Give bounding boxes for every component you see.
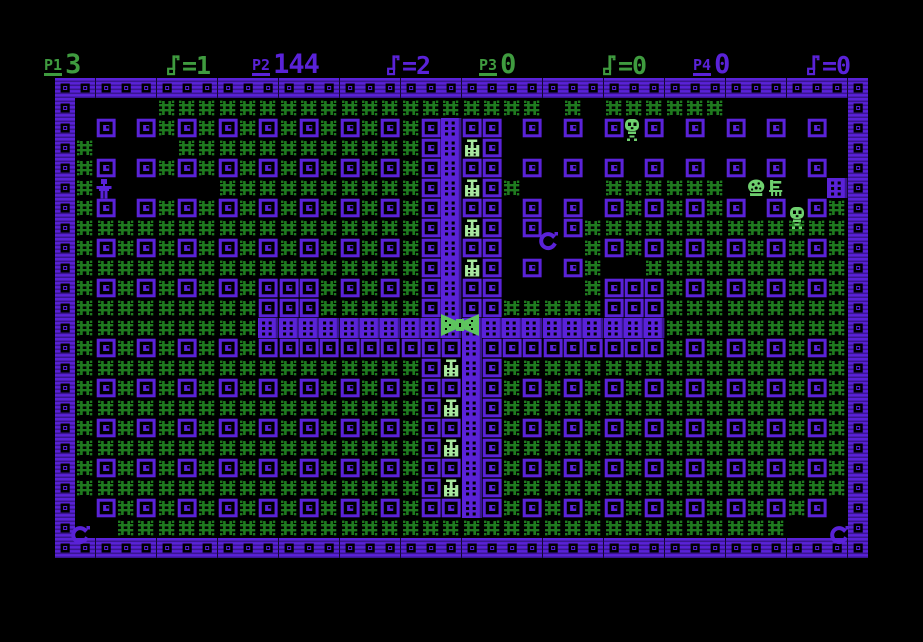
tile-wall-block bbox=[482, 198, 502, 218]
tile-wall-block bbox=[258, 238, 278, 258]
tile-grass bbox=[279, 158, 299, 178]
tile-grass bbox=[177, 358, 197, 378]
tile-grass bbox=[136, 298, 156, 318]
tile-edge-wall bbox=[766, 78, 786, 98]
tile-grass bbox=[157, 318, 177, 338]
tile-grass bbox=[340, 398, 360, 418]
tile-grass bbox=[360, 398, 380, 418]
tile-grass bbox=[827, 318, 847, 338]
tile-grass bbox=[360, 158, 380, 178]
tile-wall-block bbox=[766, 338, 786, 358]
tile-wall-block bbox=[340, 338, 360, 358]
tile-edge-wall bbox=[55, 318, 75, 338]
tile-grass bbox=[746, 518, 766, 538]
tile-dotted-door bbox=[462, 418, 482, 438]
sprite-player-purple bbox=[94, 179, 114, 203]
tile-grass bbox=[380, 298, 400, 318]
tile-grass bbox=[543, 298, 563, 318]
tile-grass bbox=[340, 518, 360, 538]
tile-edge-wall bbox=[848, 138, 868, 158]
tile-wall-block bbox=[604, 418, 624, 438]
tile-wall-block bbox=[685, 378, 705, 398]
tile-wall-block bbox=[136, 498, 156, 518]
tile-grass bbox=[746, 338, 766, 358]
tile-wall-block bbox=[685, 198, 705, 218]
tile-grass bbox=[766, 398, 786, 418]
tile-edge-wall bbox=[726, 538, 746, 558]
tile-wall-block bbox=[421, 218, 441, 238]
tile-wall-block bbox=[96, 378, 116, 398]
tile-wall-block bbox=[421, 158, 441, 178]
tile-grass bbox=[787, 278, 807, 298]
tile-wall-block bbox=[218, 238, 238, 258]
tile-wall-block bbox=[421, 178, 441, 198]
tile-wall-block bbox=[421, 338, 441, 358]
tile-empty bbox=[563, 138, 583, 158]
tile-grass bbox=[136, 438, 156, 458]
tile-grass bbox=[340, 258, 360, 278]
tile-edge-wall bbox=[848, 158, 868, 178]
tile-edge-wall bbox=[75, 78, 95, 98]
tile-grass bbox=[238, 178, 258, 198]
hud-p4-keys: =0 bbox=[806, 48, 850, 76]
p1-keys-value: =1 bbox=[182, 55, 210, 76]
tile-grass bbox=[218, 318, 238, 338]
tile-grass bbox=[157, 198, 177, 218]
tile-edge-wall bbox=[258, 78, 278, 98]
tile-heap-item bbox=[746, 178, 766, 198]
p4-keys-value: =0 bbox=[822, 55, 850, 76]
tile-wall-block bbox=[380, 118, 400, 138]
tile-grass bbox=[502, 358, 522, 378]
tile-wall-block bbox=[177, 378, 197, 398]
tile-grass bbox=[380, 218, 400, 238]
tile-edge-wall bbox=[55, 438, 75, 458]
tile-grass bbox=[502, 498, 522, 518]
tile-grass bbox=[197, 218, 217, 238]
tile-grass bbox=[766, 258, 786, 278]
tile-grass bbox=[258, 98, 278, 118]
tile-edge-wall bbox=[197, 78, 217, 98]
tile-dotted-door bbox=[441, 278, 461, 298]
tile-grass bbox=[319, 438, 339, 458]
tile-grass bbox=[746, 258, 766, 278]
tile-grass bbox=[502, 98, 522, 118]
tile-empty bbox=[502, 218, 522, 238]
tile-wall-block bbox=[807, 238, 827, 258]
tile-grass bbox=[604, 178, 624, 198]
tile-grass bbox=[116, 238, 136, 258]
tile-grass bbox=[746, 458, 766, 478]
tile-wall-block bbox=[604, 458, 624, 478]
tile-grass bbox=[197, 118, 217, 138]
tile-grass bbox=[279, 98, 299, 118]
tile-grass bbox=[136, 318, 156, 338]
tile-wall-block bbox=[421, 458, 441, 478]
tile-grass bbox=[360, 438, 380, 458]
tile-empty bbox=[96, 138, 116, 158]
tile-grass bbox=[401, 418, 421, 438]
tile-grass bbox=[136, 518, 156, 538]
tile-wall-block bbox=[726, 238, 746, 258]
tile-grass bbox=[401, 478, 421, 498]
tile-empty bbox=[96, 98, 116, 118]
tile-grass bbox=[380, 98, 400, 118]
tile-edge-wall bbox=[848, 418, 868, 438]
tile-grass bbox=[380, 138, 400, 158]
tile-grass bbox=[197, 278, 217, 298]
key-icon bbox=[386, 54, 401, 76]
tile-edge-wall bbox=[340, 78, 360, 98]
tile-grass bbox=[502, 378, 522, 398]
tile-grass bbox=[238, 498, 258, 518]
tile-grass bbox=[705, 218, 725, 238]
tile-grass bbox=[401, 198, 421, 218]
tile-wall-block bbox=[482, 278, 502, 298]
tile-grass bbox=[705, 338, 725, 358]
tile-edge-wall bbox=[55, 198, 75, 218]
tile-grass bbox=[299, 478, 319, 498]
tile-edge-wall bbox=[827, 78, 847, 98]
tile-grass bbox=[726, 298, 746, 318]
tile-dotted-door bbox=[644, 318, 664, 338]
tile-grass bbox=[726, 358, 746, 378]
tile-empty bbox=[157, 178, 177, 198]
tile-dotted-door bbox=[340, 318, 360, 338]
tile-grass bbox=[157, 398, 177, 418]
tile-dotted-door bbox=[441, 178, 461, 198]
tile-wall-block bbox=[726, 198, 746, 218]
tile-grass bbox=[177, 218, 197, 238]
tile-grass bbox=[787, 358, 807, 378]
tile-grass bbox=[319, 98, 339, 118]
tile-wall-block bbox=[624, 278, 644, 298]
tile-grass bbox=[75, 198, 95, 218]
p4-label: P4 bbox=[693, 58, 711, 76]
tile-grass bbox=[401, 138, 421, 158]
tile-wall-block bbox=[563, 118, 583, 138]
tile-dotted-door bbox=[502, 318, 522, 338]
tile-grass bbox=[827, 358, 847, 378]
tile-grass bbox=[665, 418, 685, 438]
tile-wall-block bbox=[482, 478, 502, 498]
tile-grass bbox=[726, 318, 746, 338]
tile-wall-block bbox=[604, 378, 624, 398]
p4-score-value: 0 bbox=[714, 54, 729, 76]
tile-grass bbox=[157, 298, 177, 318]
tile-edge-wall bbox=[55, 298, 75, 318]
tile-grass bbox=[238, 318, 258, 338]
tile-wall-block bbox=[482, 138, 502, 158]
tile-grass bbox=[177, 258, 197, 278]
tile-edge-wall bbox=[55, 238, 75, 258]
tile-grass bbox=[746, 218, 766, 238]
tile-grass bbox=[685, 258, 705, 278]
tile-hatch-item bbox=[766, 178, 786, 198]
tile-grass bbox=[116, 318, 136, 338]
tile-grass bbox=[279, 438, 299, 458]
tile-grass bbox=[279, 258, 299, 278]
tile-edge-wall bbox=[218, 538, 238, 558]
tile-grass bbox=[197, 298, 217, 318]
tile-grass bbox=[258, 178, 278, 198]
tile-empty bbox=[522, 178, 542, 198]
tile-wall-block bbox=[583, 338, 603, 358]
tile-grass bbox=[360, 358, 380, 378]
tile-wall-block bbox=[482, 438, 502, 458]
tile-wall-block bbox=[807, 198, 827, 218]
tile-grass bbox=[279, 138, 299, 158]
sprite-swirl-monster bbox=[536, 230, 560, 254]
tile-edge-wall bbox=[807, 538, 827, 558]
tile-grass bbox=[401, 218, 421, 238]
tile-grass bbox=[218, 518, 238, 538]
tile-empty bbox=[766, 138, 786, 158]
tile-wall-block bbox=[522, 198, 542, 218]
tile-grass bbox=[340, 358, 360, 378]
key-icon bbox=[602, 54, 617, 76]
tile-dotted-door bbox=[279, 318, 299, 338]
tile-wall-block bbox=[482, 178, 502, 198]
tile-grass bbox=[787, 298, 807, 318]
sprite-skull-monster bbox=[787, 206, 807, 230]
tile-grass bbox=[543, 438, 563, 458]
tile-grass bbox=[604, 98, 624, 118]
tile-grass bbox=[726, 398, 746, 418]
tile-grass bbox=[177, 138, 197, 158]
tile-empty bbox=[665, 138, 685, 158]
tile-dotted-door bbox=[319, 318, 339, 338]
tile-grass bbox=[177, 98, 197, 118]
tile-grass bbox=[75, 458, 95, 478]
tile-edge-wall bbox=[360, 538, 380, 558]
tile-wall-block bbox=[766, 418, 786, 438]
tile-empty bbox=[807, 138, 827, 158]
tile-wall-block bbox=[177, 498, 197, 518]
tile-grass bbox=[75, 298, 95, 318]
tile-grass bbox=[726, 478, 746, 498]
tile-wall-block bbox=[807, 338, 827, 358]
tile-wall-block bbox=[807, 378, 827, 398]
tile-wall-block bbox=[462, 118, 482, 138]
tile-empty bbox=[705, 158, 725, 178]
tile-grass bbox=[604, 438, 624, 458]
tile-grass bbox=[157, 278, 177, 298]
tile-grass bbox=[380, 398, 400, 418]
tile-grass bbox=[482, 98, 502, 118]
tile-empty bbox=[787, 98, 807, 118]
tile-edge-wall bbox=[563, 538, 583, 558]
tile-grass bbox=[279, 518, 299, 538]
tile-wall-block bbox=[462, 238, 482, 258]
tile-empty bbox=[75, 98, 95, 118]
tile-grass bbox=[421, 98, 441, 118]
tile-wall-block bbox=[482, 298, 502, 318]
tile-grass bbox=[827, 398, 847, 418]
tile-wall-block bbox=[136, 118, 156, 138]
tile-edge-wall bbox=[55, 358, 75, 378]
tile-grass bbox=[279, 218, 299, 238]
tile-edge-wall bbox=[55, 258, 75, 278]
tile-dotted-door bbox=[462, 498, 482, 518]
tile-wall-block bbox=[482, 498, 502, 518]
tile-wall-block bbox=[299, 118, 319, 138]
tile-grass bbox=[401, 238, 421, 258]
tile-edge-wall bbox=[55, 378, 75, 398]
tile-wall-block bbox=[766, 458, 786, 478]
tile-grass bbox=[583, 358, 603, 378]
tile-grass bbox=[624, 238, 644, 258]
tile-grass bbox=[401, 358, 421, 378]
tile-wall-block bbox=[299, 278, 319, 298]
tile-wall-block bbox=[726, 338, 746, 358]
tile-grass bbox=[279, 238, 299, 258]
tile-empty bbox=[96, 518, 116, 538]
tile-grass bbox=[360, 138, 380, 158]
tile-grass bbox=[746, 238, 766, 258]
tile-wall-block bbox=[604, 278, 624, 298]
tile-grass bbox=[807, 398, 827, 418]
tile-wall-block bbox=[482, 158, 502, 178]
tile-edge-wall bbox=[55, 118, 75, 138]
tile-grass bbox=[136, 218, 156, 238]
tile-empty bbox=[583, 138, 603, 158]
tile-edge-wall bbox=[55, 338, 75, 358]
tile-grass bbox=[197, 198, 217, 218]
tile-dotted-door bbox=[583, 318, 603, 338]
tile-empty bbox=[502, 118, 522, 138]
tile-grass bbox=[197, 98, 217, 118]
tile-grass bbox=[258, 518, 278, 538]
tile-grass bbox=[665, 398, 685, 418]
tile-empty bbox=[502, 158, 522, 178]
tile-grass bbox=[522, 518, 542, 538]
tile-wall-block bbox=[644, 298, 664, 318]
tile-edge-wall bbox=[299, 538, 319, 558]
tile-grass bbox=[279, 118, 299, 138]
tile-grass bbox=[380, 478, 400, 498]
tile-grass bbox=[401, 438, 421, 458]
tile-wall-block bbox=[421, 358, 441, 378]
tile-grass bbox=[360, 378, 380, 398]
tile-crown-item bbox=[462, 218, 482, 238]
tile-grass bbox=[746, 418, 766, 438]
tile-dotted-door bbox=[441, 198, 461, 218]
tile-edge-wall bbox=[116, 78, 136, 98]
tile-grass bbox=[522, 298, 542, 318]
tile-grass bbox=[96, 218, 116, 238]
tile-empty bbox=[543, 138, 563, 158]
tile-wall-block bbox=[726, 418, 746, 438]
tile-grass bbox=[705, 398, 725, 418]
tile-wall-block bbox=[604, 118, 624, 138]
tile-grass bbox=[197, 358, 217, 378]
tile-edge-wall bbox=[116, 538, 136, 558]
tile-empty bbox=[543, 258, 563, 278]
tile-edge-wall bbox=[258, 538, 278, 558]
tile-edge-wall bbox=[746, 538, 766, 558]
tile-grass bbox=[360, 278, 380, 298]
tile-dotted-door bbox=[462, 358, 482, 378]
tile-empty bbox=[116, 198, 136, 218]
tile-wall-block bbox=[136, 198, 156, 218]
tile-grass bbox=[401, 298, 421, 318]
tile-grass bbox=[360, 178, 380, 198]
tile-grass bbox=[258, 358, 278, 378]
tile-wall-block bbox=[807, 158, 827, 178]
tile-wall-block bbox=[380, 338, 400, 358]
tile-wall-block bbox=[685, 278, 705, 298]
tile-edge-wall bbox=[848, 378, 868, 398]
tile-edge-wall bbox=[197, 538, 217, 558]
tile-grass bbox=[157, 98, 177, 118]
tile-grass bbox=[624, 498, 644, 518]
tile-grass bbox=[787, 458, 807, 478]
tile-wall-block bbox=[563, 418, 583, 438]
tile-wall-block bbox=[177, 278, 197, 298]
tile-grass bbox=[726, 438, 746, 458]
tile-grass bbox=[279, 418, 299, 438]
tile-grass bbox=[157, 518, 177, 538]
tile-dotted-door bbox=[360, 318, 380, 338]
tile-grass bbox=[319, 458, 339, 478]
tile-grass bbox=[705, 358, 725, 378]
tile-grass bbox=[502, 298, 522, 318]
tile-empty bbox=[705, 138, 725, 158]
tile-grass bbox=[360, 198, 380, 218]
tile-empty bbox=[685, 138, 705, 158]
tile-grass bbox=[665, 318, 685, 338]
tile-wall-block bbox=[685, 498, 705, 518]
tile-grass bbox=[401, 118, 421, 138]
tile-grass bbox=[827, 378, 847, 398]
tile-edge-wall bbox=[848, 198, 868, 218]
tile-grass bbox=[360, 478, 380, 498]
tile-edge-wall bbox=[624, 78, 644, 98]
tile-grass bbox=[583, 398, 603, 418]
tile-edge-wall bbox=[96, 78, 116, 98]
tile-grass bbox=[563, 478, 583, 498]
tile-empty bbox=[766, 98, 786, 118]
tile-grass bbox=[116, 418, 136, 438]
tile-grass bbox=[766, 298, 786, 318]
tile-grass bbox=[522, 478, 542, 498]
tile-grass bbox=[807, 478, 827, 498]
tile-empty bbox=[827, 98, 847, 118]
tile-wall-block bbox=[380, 198, 400, 218]
tile-grass bbox=[319, 118, 339, 138]
tile-grass bbox=[705, 238, 725, 258]
tile-grass bbox=[563, 438, 583, 458]
tile-grass bbox=[665, 378, 685, 398]
tile-empty bbox=[197, 178, 217, 198]
tile-wall-block bbox=[96, 338, 116, 358]
tile-wall-block bbox=[482, 358, 502, 378]
tile-edge-wall bbox=[705, 538, 725, 558]
tile-grass bbox=[502, 398, 522, 418]
tile-grass bbox=[177, 478, 197, 498]
tile-grass bbox=[218, 358, 238, 378]
tile-grass bbox=[360, 218, 380, 238]
tile-grass bbox=[583, 378, 603, 398]
tile-grass bbox=[827, 458, 847, 478]
tile-edge-wall bbox=[848, 358, 868, 378]
tile-empty bbox=[726, 138, 746, 158]
sprite-swirl-monster bbox=[827, 524, 851, 548]
tile-wall-block bbox=[421, 478, 441, 498]
tile-wall-block bbox=[279, 338, 299, 358]
tile-grass bbox=[746, 438, 766, 458]
